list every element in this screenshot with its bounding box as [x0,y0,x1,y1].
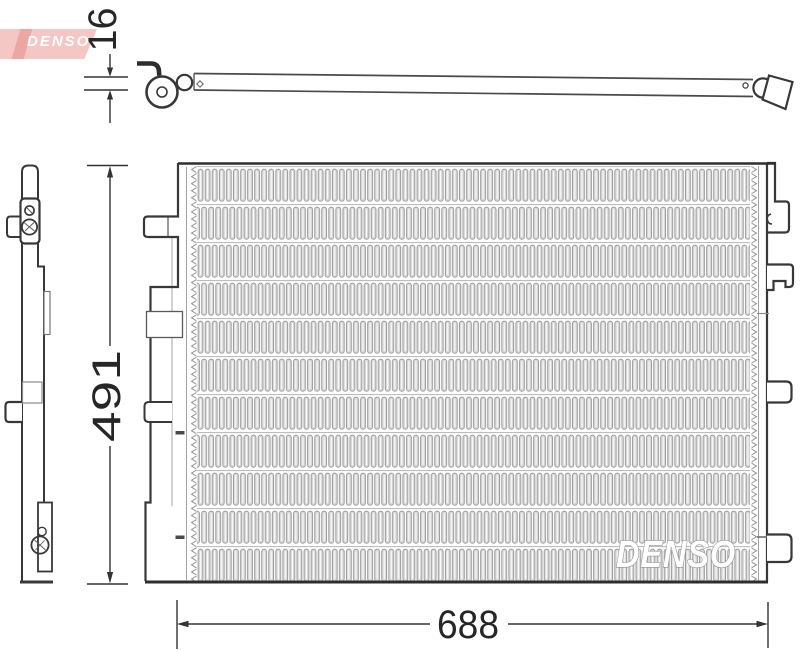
arrow-down-icon [107,572,113,584]
fin-edge-left [190,166,197,582]
top-view-port-circle [177,75,192,90]
arrow-up-icon [107,90,113,99]
right-top-flange [767,163,789,233]
side-view-bracket-box [23,382,43,403]
right-bracket-middle [767,265,793,291]
top-view-pipe [137,64,159,76]
right-bracket-bottom [767,535,792,563]
top-view [137,64,793,110]
dimension-width-label: 688 [437,603,499,647]
left-lower-tab [145,402,173,422]
drawing-page: DENSO [0,0,800,652]
fin-core [197,166,750,582]
side-view-mid-bracket [44,292,50,335]
arrow-down-icon [107,68,113,77]
top-view-bar [194,74,753,97]
side-view-lower-tab [6,402,23,422]
top-view-right-bracket [763,76,793,110]
left-tank-outline [144,163,178,581]
front-view: DENSO [144,163,793,582]
left-tick-upper [176,431,185,435]
denso-watermark: DENSO [616,534,736,576]
arrow-left-icon [177,621,189,627]
dimension-height-label: 491 [85,350,129,442]
left-mount-box [147,312,183,338]
left-tick-lower [176,536,185,540]
side-view [6,166,54,583]
dimension-width: 688 [177,600,768,649]
top-view-drier-circle [147,77,178,108]
dimension-height: 491 [85,166,129,585]
top-view-right-hole [743,83,748,88]
arrow-up-icon [107,166,113,178]
right-bracket-hook [767,214,772,224]
right-bracket-small [767,382,792,403]
arrow-right-icon [757,621,769,627]
top-view-diamond-mark [197,81,203,87]
dimension-thickness-label: 16 [81,8,125,52]
fin-edge-right [751,166,758,582]
condenser-technical-drawing: 16 [0,0,800,652]
dimension-thickness: 16 [81,8,128,124]
